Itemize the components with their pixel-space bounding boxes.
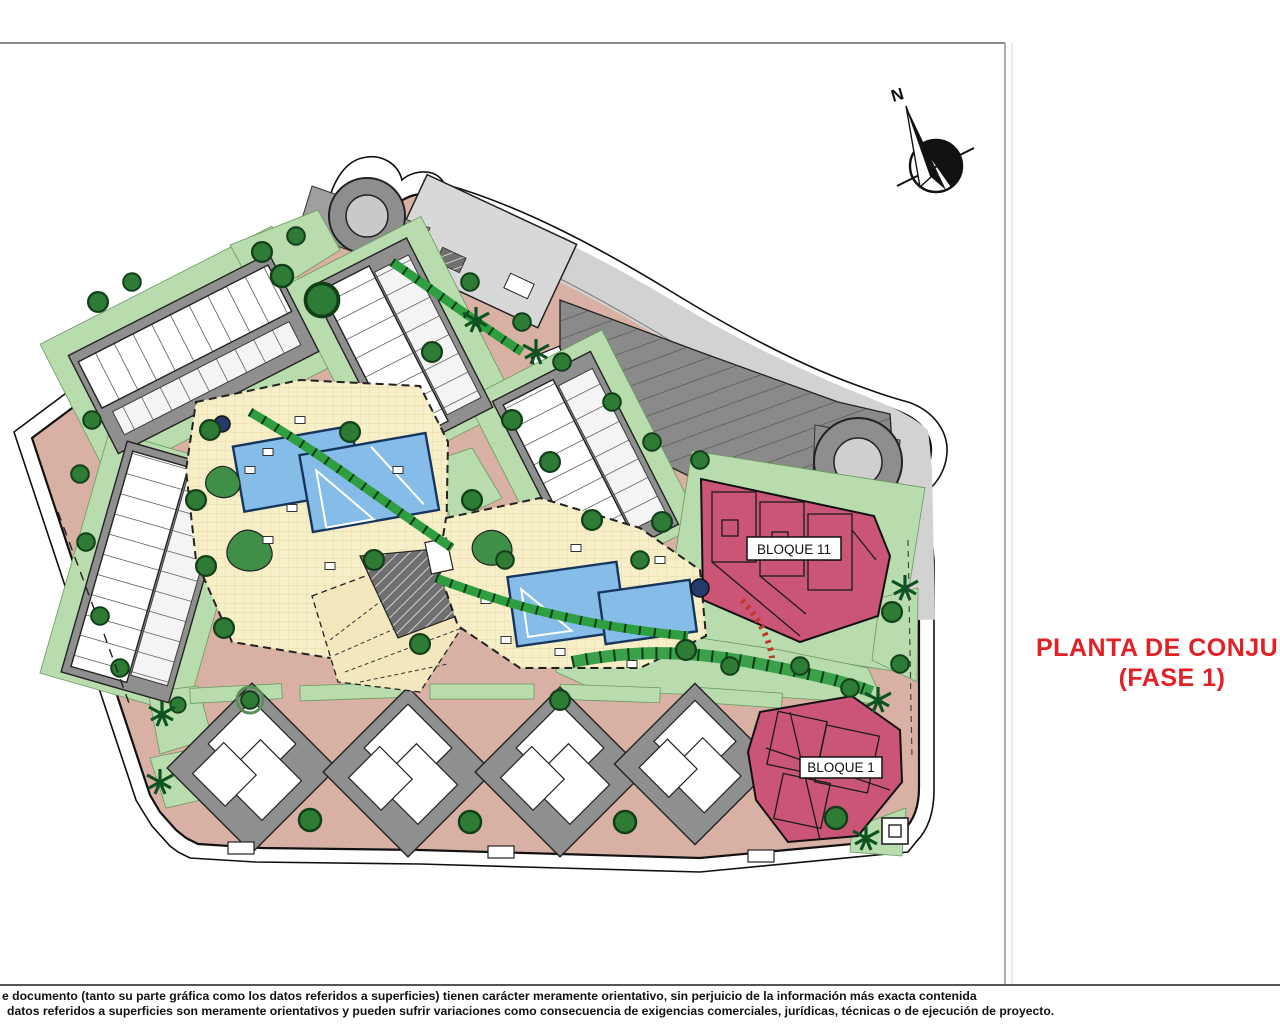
fountain-2 — [691, 579, 709, 597]
disclaimer-line-2: datos referidos a superficies son merame… — [7, 1004, 1054, 1018]
transformer-box — [882, 818, 908, 844]
sheet-title: PLANTA DE CONJUNTO (FASE 1) — [1036, 634, 1280, 692]
north-arrow: N — [889, 84, 974, 192]
bloque-1-label: BLOQUE 1 — [807, 760, 875, 775]
disclaimer-line-1: e documento (tanto su parte gráfica como… — [2, 989, 977, 1003]
bloque-11-label: BLOQUE 11 — [757, 542, 831, 557]
title-line-1: PLANTA DE CONJUNTO — [1036, 634, 1280, 662]
title-line-2: (FASE 1) — [1119, 664, 1226, 692]
site-plan-sheet: BLOQUE 11 BLOQUE 1 — [0, 0, 1280, 1024]
master-plan-drawing: BLOQUE 11 BLOQUE 1 — [14, 157, 947, 872]
disclaimer: e documento (tanto su parte gráfica como… — [2, 989, 1054, 1018]
north-label: N — [889, 84, 906, 106]
